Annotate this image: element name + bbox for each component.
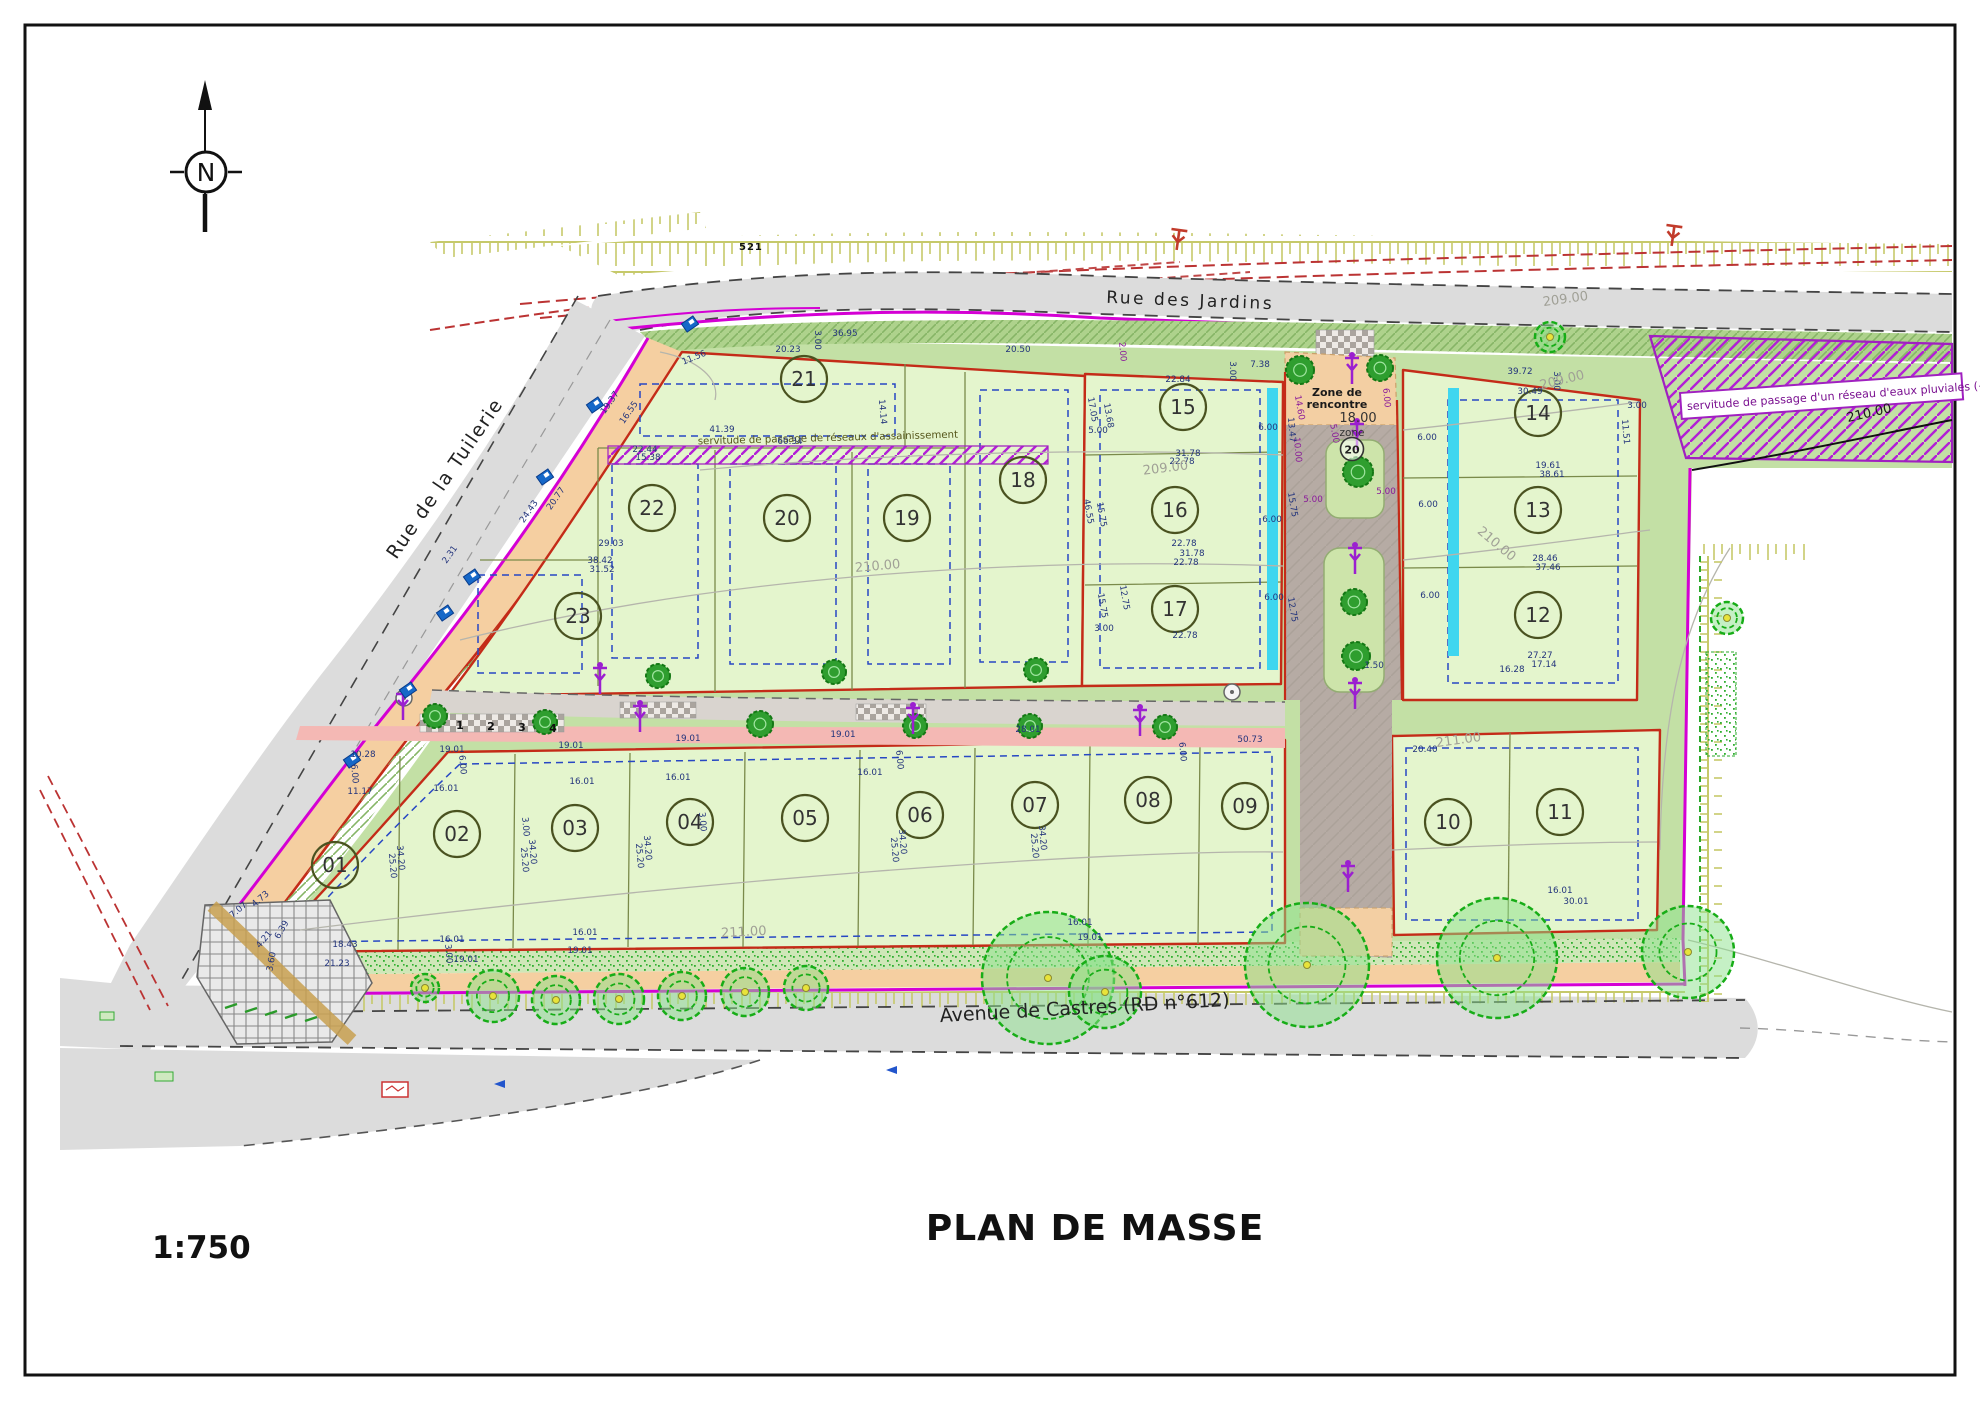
dimension-label: 16.28 [1499, 665, 1524, 675]
dimension-label: 3.00 [1627, 401, 1647, 411]
tree-icon [1341, 589, 1367, 615]
dimension-label: 16.01 [665, 773, 690, 783]
lot-number: 15 [1170, 395, 1195, 419]
tree-icon [1711, 602, 1743, 634]
lot-number: 14 [1525, 401, 1550, 425]
tree-number-label: 4 [549, 722, 557, 735]
tree-icon [1153, 715, 1177, 739]
dimension-label: 6.00 [1418, 500, 1438, 510]
dimension-label: 22.84 [1165, 375, 1191, 385]
servitude-pluviales-area: servitude de passage d'un réseau d'eaux … [1650, 336, 1980, 462]
dimension-label: 11.17 [347, 787, 372, 797]
dimension-label: 20.50 [1005, 345, 1031, 355]
tree-icon [784, 966, 828, 1010]
tree-icon [423, 704, 447, 728]
lot-number: 22 [639, 496, 664, 520]
tree-icon [1367, 355, 1393, 381]
svg-text:20: 20 [1344, 444, 1360, 457]
lot-number: 19 [894, 506, 919, 530]
tree-icon [658, 972, 706, 1020]
lot-number: 10 [1435, 810, 1460, 834]
dimension-label: 18.43 [332, 940, 357, 950]
dimension-label: 19.01 [830, 730, 855, 740]
dimension-label: 20.40 [1412, 745, 1438, 755]
svg-text:18.00: 18.00 [1339, 411, 1376, 426]
page-title: PLAN DE MASSE [926, 1208, 1264, 1249]
lot-number: 23 [565, 604, 590, 628]
dimension-label: 19.01 [558, 741, 583, 751]
dimension-label: 3.00 [812, 330, 822, 350]
dimension-label: 3.00 [1227, 361, 1237, 381]
lot-number: 06 [907, 803, 932, 827]
lot-number: 18 [1010, 468, 1035, 492]
dimension-label: 36.95 [832, 329, 857, 339]
tree-number-label: 2 [487, 720, 495, 733]
dimension-label: 30.01 [1563, 897, 1588, 907]
dimension-label: 30.49 [1517, 387, 1542, 397]
tree-icon [411, 974, 439, 1002]
dimension-label: 22.78 [1172, 631, 1197, 641]
dimension-label: 6.00 [893, 750, 905, 771]
dimension-label: 5.00 [1303, 495, 1323, 505]
dimension-label: 3.00 [696, 812, 708, 833]
lot-number: 21 [791, 367, 816, 391]
tree-icon [1286, 356, 1314, 384]
dimension-label: 6.00 [1420, 591, 1440, 601]
dimension-label: 19.01 [675, 734, 700, 744]
dimension-label: 2.00 [1116, 342, 1128, 363]
dimension-label: 6.00 [1417, 433, 1437, 443]
dimension-label: 19.01 [567, 946, 592, 956]
dimension-label: 6.00 [456, 755, 468, 776]
tree-icon [822, 660, 846, 684]
lot-number: 13 [1525, 498, 1550, 522]
dimension-label: 5.00 [1376, 487, 1396, 497]
dimension-label: 16.01 [433, 784, 458, 794]
dimension-label: 6.00 [1262, 515, 1282, 525]
tree-number-label: 1 [456, 719, 464, 732]
tree-icon [1437, 898, 1557, 1018]
benchmark-label: 521 [739, 242, 763, 253]
dimension-label: 3.00 [519, 817, 531, 838]
dimension-label: 17.14 [1531, 660, 1557, 670]
dimension-label: 16.01 [572, 928, 597, 938]
dimension-label: 5.00 [1088, 426, 1108, 436]
north-letter: N [197, 158, 216, 187]
dimension-label: 6.00 [1380, 388, 1392, 409]
dimension-label: 3.00 [442, 944, 454, 965]
dimension-label: 19.01 [439, 745, 464, 755]
tree-number-label: 3 [518, 721, 526, 734]
dimension-label: 16.01 [1547, 886, 1572, 896]
lot-number: 12 [1525, 603, 1550, 627]
tree-icon [1343, 457, 1373, 487]
dimension-label: 39.72 [1507, 367, 1532, 377]
lot-number: 11 [1547, 800, 1572, 824]
dimension-label: 38.61 [1539, 470, 1564, 480]
tree-icon [1642, 906, 1734, 998]
dimension-label: 1.50 [1364, 661, 1384, 671]
dimension-label: 15.38 [635, 453, 660, 463]
dimension-label: 29.03 [598, 539, 623, 549]
dimension-label: 10.28 [350, 750, 375, 760]
dimension-label: 22.78 [1173, 558, 1198, 568]
lot-number: 02 [444, 822, 469, 846]
tree-icon [1024, 658, 1048, 682]
dimension-label: 16.01 [857, 768, 882, 778]
lot-number: 01 [322, 853, 347, 877]
tree-icon [747, 711, 773, 737]
dimension-label: 21.23 [324, 959, 349, 969]
dimension-label: 19.01 [453, 955, 478, 965]
dimension-label: 31.52 [589, 565, 614, 575]
dimension-label: 7.38 [1250, 360, 1270, 370]
tree-icon [467, 970, 519, 1022]
tree-icon [532, 976, 580, 1024]
dimension-label: 60.34 [777, 437, 803, 447]
lot-number: 17 [1162, 597, 1187, 621]
site-plan: servitude de passage d'un réseau d'eaux … [0, 0, 1980, 1399]
tree-icon [721, 968, 769, 1016]
dimension-label: 41.39 [709, 425, 734, 435]
lot-number: 07 [1022, 793, 1047, 817]
dimension-label: 6.00 [1258, 423, 1278, 433]
dimension-label: 37.46 [1535, 563, 1561, 573]
lot-number: 05 [792, 806, 817, 830]
scale-label: 1:750 [152, 1230, 251, 1266]
tree-icon [1245, 903, 1369, 1027]
tree-icon [646, 664, 670, 688]
dimension-label: 22.78 [1171, 539, 1196, 549]
dimension-label: 19.01 [1077, 933, 1102, 943]
dimension-label: 6.00 [348, 764, 360, 785]
lot-number: 09 [1232, 794, 1257, 818]
dimension-label: 20.23 [775, 345, 800, 355]
lot-number: 08 [1135, 788, 1160, 812]
dimension-label: 50.73 [1237, 735, 1262, 745]
swale-strip [1448, 388, 1459, 656]
svg-text:rencontre: rencontre [1307, 398, 1368, 411]
lot-number: 03 [562, 816, 587, 840]
dimension-label: 6.00 [1264, 593, 1284, 603]
tree-icon [1535, 322, 1565, 352]
lot-number: 20 [774, 506, 799, 530]
dimension-label: 6.00 [1176, 742, 1188, 763]
tree-icon [594, 974, 644, 1024]
contour-label: 211.00 [721, 924, 767, 941]
dimension-label: 16.01 [569, 777, 594, 787]
dimension-label: 28.01 [1015, 725, 1040, 735]
lot-number: 16 [1162, 498, 1187, 522]
dimension-label: 3.00 [1094, 624, 1114, 634]
dimension-label: 16.01 [1067, 918, 1092, 928]
plan-sheet: servitude de passage d'un réseau d'eaux … [0, 0, 1980, 1399]
